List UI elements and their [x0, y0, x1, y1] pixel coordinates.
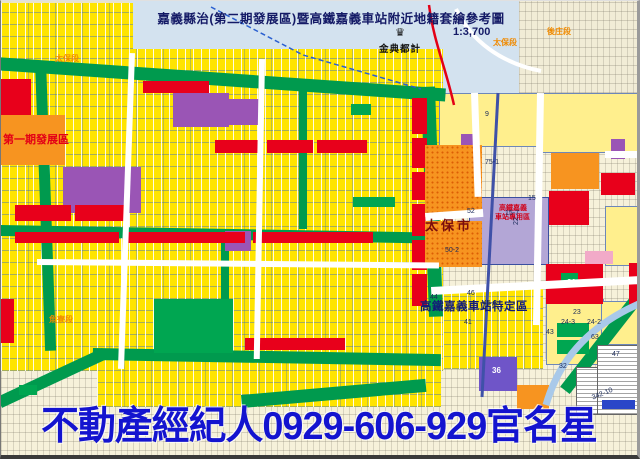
map-label: 32 — [559, 363, 567, 370]
map-label: 47 — [612, 351, 620, 358]
map-label: 41 — [464, 319, 472, 326]
map-label: 23 — [573, 309, 581, 316]
map-label: 36 — [492, 367, 501, 375]
map-label: 太保段 — [55, 55, 79, 63]
map-label: 43 — [546, 329, 554, 336]
map-label: 46-3 — [483, 300, 497, 307]
map-label: 第一期發展區 — [3, 135, 69, 146]
map-scale: 1:3,700 — [453, 26, 490, 38]
map-label: 後庄段 — [547, 28, 571, 36]
jindian-logo: ♛ 金典都計 — [369, 28, 431, 57]
map-label: 22 — [513, 217, 520, 225]
map-label: 魚寮段 — [49, 316, 73, 324]
crown-icon: ♛ — [369, 28, 431, 39]
map-label: 50-2 — [445, 247, 459, 254]
map-label: 52 — [467, 208, 475, 215]
map-label: 75-1 — [485, 159, 499, 166]
map-label: 15 — [528, 195, 536, 202]
map-label: 24-3 — [561, 319, 575, 326]
map-label: 15-7 — [505, 210, 519, 217]
map-label: 9 — [485, 111, 489, 118]
map-labels-layer: 太保段後庄段太保段魚寮段第一期發展區太保市高鐵嘉義車站特定區高鐵嘉義車站專用區9… — [1, 1, 637, 455]
map-label: 44 — [430, 294, 438, 301]
map-label: 太保市 — [425, 219, 473, 232]
map-label: 高鐵嘉義車站特定區 — [420, 302, 528, 314]
map-label: 太保段 — [493, 39, 517, 47]
map-label: 46 — [467, 290, 475, 297]
map-label: 24-2 — [587, 319, 601, 326]
logo-text: 金典都計 — [379, 44, 421, 55]
map-label: 21 — [567, 279, 576, 287]
map-label: 63 — [591, 334, 599, 341]
realtor-ad-text: 不動產經紀人0929-606-929官名星 — [41, 395, 597, 451]
map-title: 嘉義縣治(第二期發展區)暨高鐵嘉義車站附近地籍套繪參考圖 — [141, 8, 521, 27]
map-stage: 太保段後庄段太保段魚寮段第一期發展區太保市高鐵嘉義車站特定區高鐵嘉義車站專用區9… — [0, 0, 640, 459]
